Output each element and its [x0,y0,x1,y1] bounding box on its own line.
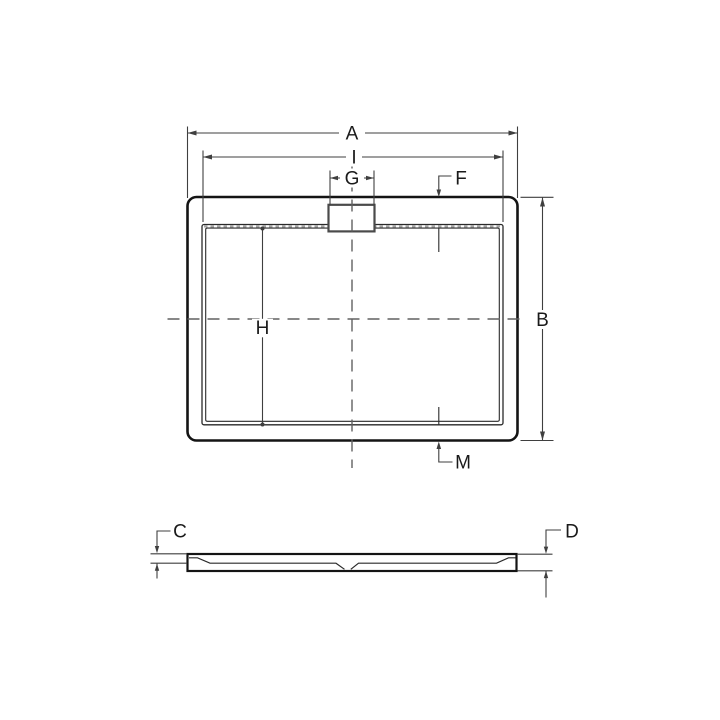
dim-label-f: F [455,169,467,190]
plan-view: A I G F B H M [168,124,554,474]
dim-c-arrow-up [155,564,159,571]
dim-label-b: B [536,310,549,331]
dim-a-arrow-left [188,131,197,136]
dim-label-h: H [256,318,270,339]
dim-label-i: I [351,148,356,169]
dim-label-g: G [345,169,360,190]
dim-label-c: C [173,522,187,543]
dim-a-arrow-right [509,131,518,136]
side-view: C D [151,522,579,598]
dim-g-arrow-right [366,176,374,180]
dim-d-bracket [546,530,561,547]
dim-b-arrow-bottom [540,432,545,441]
dim-i-arrow-left [203,155,212,160]
dim-label-d: D [565,522,579,543]
dim-d-arrow-down [544,547,548,554]
dim-c-bracket [157,531,171,547]
dim-h-dot-bottom [261,423,265,427]
side-labels: C D [173,522,579,543]
dim-label-m: M [455,453,471,474]
dim-i-arrow-right [494,155,503,160]
dim-m-leader [439,449,453,463]
dim-d-arrow-up [544,571,548,578]
dim-b-arrow-top [540,198,545,207]
dim-label-a: A [346,124,359,145]
dim-f-leader [439,176,452,191]
shower-tray-dimension-drawing: A I G F B H M [0,0,720,720]
dim-g-arrow-left [330,176,338,180]
technical-drawing-page: A I G F B H M [0,0,720,720]
dim-m-arrow [437,442,442,450]
dim-c-arrow-down [155,546,159,553]
dim-h-dot-top [261,227,265,231]
